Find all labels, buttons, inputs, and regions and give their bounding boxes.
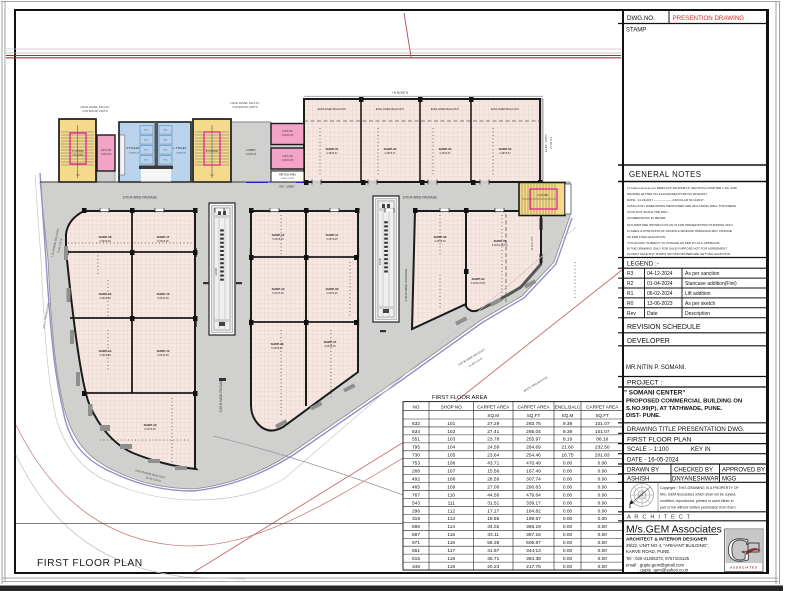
svg-text:0.00: 0.00 xyxy=(598,476,608,482)
svg-text:27.41: 27.41 xyxy=(487,429,499,435)
svg-text:DIST- PUNE.: DIST- PUNE. xyxy=(626,413,661,419)
svg-text:4.05X6.25: 4.05X6.25 xyxy=(326,292,338,295)
svg-text:24.59: 24.59 xyxy=(487,445,499,451)
svg-text:344.13: 344.13 xyxy=(526,548,541,554)
svg-text:IN-STAIR: IN-STAIR xyxy=(206,149,219,153)
svg-text:+1.5M LVL: +1.5M LVL xyxy=(549,136,553,149)
svg-text:Staircase addition(Fire): Staircase addition(Fire) xyxy=(685,281,737,287)
svg-text:SCALE :- 1:100: SCALE :- 1:100 xyxy=(627,447,669,453)
svg-text:606.87: 606.87 xyxy=(526,540,541,546)
svg-text:CARPET AREA: CARPET AREA xyxy=(586,405,619,410)
svg-text:ENCLOSED BALCONY: ENCLOSED BALCONY xyxy=(491,107,520,111)
svg-text:23.78: 23.78 xyxy=(487,437,499,443)
svg-text:307.74: 307.74 xyxy=(526,476,541,482)
svg-text:108: 108 xyxy=(447,476,455,482)
svg-text:6.60X4.05(P)+: 6.60X4.05(P)+ xyxy=(492,244,509,247)
svg-text:OUTDOOR UNITS: OUTDOOR UNITS xyxy=(232,105,257,109)
svg-text:DRAWN BY: DRAWN BY xyxy=(627,468,659,474)
svg-text:767: 767 xyxy=(412,492,420,498)
svg-text:SHOP-10: SHOP-10 xyxy=(272,287,285,291)
svg-text:FIRST FLOOR PLAN: FIRST FLOOR PLAN xyxy=(37,558,143,569)
svg-text:5.05X8.25: 5.05X8.25 xyxy=(271,347,283,350)
svg-text:543: 543 xyxy=(412,500,420,506)
svg-text:109: 109 xyxy=(447,484,455,490)
svg-text:SHOP-02: SHOP-02 xyxy=(384,147,397,151)
svg-text:102: 102 xyxy=(447,429,455,435)
svg-text:ENT. LOBBY: ENT. LOBBY xyxy=(280,185,295,189)
svg-text:STAMP: STAMP xyxy=(626,28,646,34)
svg-text:587: 587 xyxy=(412,532,420,538)
svg-text:1) Carpet area as per RERA ACT: 1) Carpet area as per RERA ACT 2016/A/BT… xyxy=(627,186,738,190)
svg-text:4.48X5.67: 4.48X5.67 xyxy=(384,152,396,155)
svg-text:DRAWING TITLE PRESENTATION DWG: DRAWING TITLE PRESENTATION DWG. xyxy=(627,426,745,433)
svg-text:27.00: 27.00 xyxy=(487,484,499,490)
svg-text:290.63: 290.63 xyxy=(526,484,541,490)
svg-text:W.C: W.C xyxy=(163,160,168,162)
svg-text:366.19: 366.19 xyxy=(526,524,541,530)
svg-text:264.69: 264.69 xyxy=(526,445,541,451)
svg-text:LOBBY: LOBBY xyxy=(246,148,256,152)
svg-text:8.19: 8.19 xyxy=(563,437,573,443)
svg-text:0.00: 0.00 xyxy=(563,469,573,475)
svg-text:4.45X8.25: 4.45X8.25 xyxy=(434,240,446,243)
svg-text:479.64: 479.64 xyxy=(526,492,541,498)
svg-text:0.00: 0.00 xyxy=(563,461,573,467)
svg-text:56.38: 56.38 xyxy=(487,540,499,546)
svg-text:104: 104 xyxy=(447,445,455,451)
svg-text:3.05 M WIDE PASSAGE: 3.05 M WIDE PASSAGE xyxy=(403,196,438,200)
svg-text:SHOP-04: SHOP-04 xyxy=(472,277,485,281)
svg-text:0.00: 0.00 xyxy=(563,524,573,530)
svg-text:S.NO.99(P), AT TATHWADE, PUNE: S.NO.99(P), AT TATHWADE, PUNE. xyxy=(626,406,723,412)
svg-text:0.00: 0.00 xyxy=(598,532,608,538)
svg-text:103: 103 xyxy=(447,437,455,443)
svg-text:Lift addition: Lift addition xyxy=(685,291,711,297)
svg-text:13-06-2023: 13-06-2023 xyxy=(647,301,673,307)
svg-text:APPROVED BY: APPROVED BY xyxy=(722,468,765,474)
svg-text:34.11: 34.11 xyxy=(487,532,499,538)
svg-text:119: 119 xyxy=(447,564,455,570)
svg-text:modified, reproduced, printed: modified, reproduced, printed or used ei… xyxy=(660,499,734,503)
svg-text:5.05X6.25: 5.05X6.25 xyxy=(157,354,169,357)
svg-text:348: 348 xyxy=(412,564,420,570)
svg-text:2.000X1.95: 2.000X1.95 xyxy=(282,135,294,137)
svg-text:4.48X5.67: 4.48X5.67 xyxy=(439,152,451,155)
svg-text:+H NORTH: +H NORTH xyxy=(392,91,409,95)
svg-text:201.83: 201.83 xyxy=(595,453,610,459)
svg-text:F.TOILET: F.TOILET xyxy=(126,146,139,150)
svg-text:9.39: 9.39 xyxy=(563,421,573,427)
svg-text:Date: Date xyxy=(647,311,658,317)
svg-text:116: 116 xyxy=(447,540,455,546)
svg-text:SHOP-16: SHOP-16 xyxy=(99,292,112,296)
svg-text:0.00: 0.00 xyxy=(598,556,608,562)
svg-text:LIFT-02: LIFT-02 xyxy=(282,129,293,133)
svg-text:0.00: 0.00 xyxy=(598,461,608,467)
svg-text:UP: UP xyxy=(210,173,214,177)
svg-text:31.51: 31.51 xyxy=(487,500,499,506)
svg-text:SHOP-05: SHOP-05 xyxy=(494,239,507,243)
svg-text:M/s. GEM Associates which shal: M/s. GEM Associates which shall not be c… xyxy=(660,493,736,497)
svg-text:0.00: 0.00 xyxy=(598,548,608,554)
svg-text:27.29: 27.29 xyxy=(487,421,499,427)
svg-text:3.00 M WIDE PASSAGE: 3.00 M WIDE PASSAGE xyxy=(404,269,408,302)
svg-text:0.00: 0.00 xyxy=(563,540,573,546)
svg-text:0.00: 0.00 xyxy=(598,492,608,498)
svg-text:01-04-2024: 01-04-2024 xyxy=(647,281,673,287)
svg-text:0.00: 0.00 xyxy=(598,500,608,506)
svg-text:CHECKED BY: CHECKED BY xyxy=(674,468,713,474)
svg-text:0.00: 0.00 xyxy=(563,500,573,506)
svg-text:LIFT-03: LIFT-03 xyxy=(282,154,293,158)
svg-text:ENCLOSED BALCONY: ENCLOSED BALCONY xyxy=(318,107,347,111)
svg-text:634: 634 xyxy=(412,429,420,435)
svg-text:4.45X6.28: 4.45X6.28 xyxy=(99,297,111,300)
svg-text:W.C: W.C xyxy=(163,130,168,132)
svg-text:DATE:- 14-09-2017-------------: DATE:- 14-09-2017-------------------CIRC… xyxy=(627,198,705,202)
svg-text:R0: R0 xyxy=(627,301,634,307)
svg-text:A S S O C I A T E S: A S S O C I A T E S xyxy=(730,566,757,570)
svg-text:115: 115 xyxy=(447,532,455,538)
svg-text:101.07: 101.07 xyxy=(595,429,610,435)
svg-text:1.95X1.80: 1.95X1.80 xyxy=(101,154,112,156)
svg-text:04-12-2024: 04-12-2024 xyxy=(647,271,673,277)
svg-text:114: 114 xyxy=(447,524,455,530)
svg-text:551: 551 xyxy=(412,437,420,443)
svg-text:293.75: 293.75 xyxy=(526,421,541,427)
svg-text:18.55: 18.55 xyxy=(487,516,499,522)
svg-text:R1: R1 xyxy=(627,291,634,297)
svg-text:RAMP: RAMP xyxy=(214,268,218,276)
svg-text:PROJECT :: PROJECT : xyxy=(627,380,662,387)
svg-text:Copyright : THIS DRAWING IS A: Copyright : THIS DRAWING IS A PROPERTY O… xyxy=(660,486,740,490)
svg-text:101.07: 101.07 xyxy=(595,421,610,427)
svg-text:110: 110 xyxy=(447,492,455,498)
svg-text:SHOP-11: SHOP-11 xyxy=(326,233,339,237)
svg-text:" SOMANI CENTER": " SOMANI CENTER" xyxy=(624,390,685,397)
svg-text:F-STAIR: F-STAIR xyxy=(538,193,549,197)
svg-text:Description: Description xyxy=(685,311,710,317)
svg-text:101: 101 xyxy=(447,421,455,427)
svg-text:9.05X6.25: 9.05X6.25 xyxy=(144,428,156,431)
svg-text:254.46: 254.46 xyxy=(526,453,541,459)
svg-text:319: 319 xyxy=(412,516,420,522)
svg-text:SHOP-12: SHOP-12 xyxy=(272,233,285,237)
svg-text:2) BALCONY DIMENSIONS MENTIONE: 2) BALCONY DIMENSIONS MENTIONED ARE INCL… xyxy=(627,204,737,208)
svg-text:0.00: 0.00 xyxy=(598,508,608,514)
svg-text:06-02-2024: 06-02-2024 xyxy=(647,291,673,297)
svg-text:FIRST FLOOR AREA: FIRST FLOOR AREA xyxy=(432,395,487,401)
svg-text:384.38: 384.38 xyxy=(526,556,541,562)
svg-text:CARPET AREA: CARPET AREA xyxy=(477,405,510,410)
svg-text:UP: UP xyxy=(76,173,80,177)
svg-text:PROPOSED COMMERCIAL BUILDING O: PROPOSED COMMERCIAL BUILDING ON xyxy=(626,399,742,405)
svg-text:28.59: 28.59 xyxy=(487,476,499,482)
svg-text:A R C H I T E C T: A R C H I T E C T xyxy=(627,515,691,521)
svg-text:632: 632 xyxy=(412,421,420,427)
svg-text:SHOP-14: SHOP-14 xyxy=(99,349,112,353)
svg-text:ENCLOSED BALCONY: ENCLOSED BALCONY xyxy=(376,107,405,111)
svg-text:0.00: 0.00 xyxy=(563,516,573,522)
svg-text:199.67: 199.67 xyxy=(526,516,541,522)
svg-text:23.64: 23.64 xyxy=(487,453,499,459)
svg-text:0.00: 0.00 xyxy=(563,492,573,498)
svg-text:SHOP-13: SHOP-13 xyxy=(157,349,170,353)
svg-text:As per sketch: As per sketch xyxy=(685,301,716,307)
svg-text:W.C: W.C xyxy=(144,160,149,162)
svg-text:DWG.NO.: DWG.NO. xyxy=(627,15,655,22)
svg-text:43.71: 43.71 xyxy=(487,461,499,467)
svg-text:AS PER FINAL ELEVATION .: AS PER FINAL ELEVATION . xyxy=(627,235,667,239)
svg-text:5.05X6.25: 5.05X6.25 xyxy=(272,292,284,295)
svg-text:SHOP-17: SHOP-17 xyxy=(157,235,170,239)
svg-text:M/s.GEM Associates: M/s.GEM Associates xyxy=(626,525,722,536)
svg-text:105: 105 xyxy=(447,453,455,459)
svg-text:0.00: 0.00 xyxy=(598,524,608,530)
svg-text:SHOP-04: SHOP-04 xyxy=(499,147,512,151)
svg-text:117: 117 xyxy=(447,548,455,554)
svg-text:MR.NITIN P. SOMANI.: MR.NITIN P. SOMANI. xyxy=(626,365,687,371)
svg-text:5.05X8.25: 5.05X8.25 xyxy=(157,240,169,243)
svg-text:492: 492 xyxy=(412,476,420,482)
svg-text:W.C: W.C xyxy=(144,140,149,142)
svg-text:3.05X1.20 MT: 3.05X1.20 MT xyxy=(281,178,295,180)
svg-text:339.17: 339.17 xyxy=(526,500,541,506)
svg-text:184.82: 184.82 xyxy=(526,508,541,514)
svg-text:0.00: 0.00 xyxy=(598,564,608,570)
svg-text:111: 111 xyxy=(448,500,456,506)
svg-text:SHOP-19: SHOP-19 xyxy=(144,423,157,427)
svg-text:107: 107 xyxy=(447,469,455,475)
svg-text:20.23: 20.23 xyxy=(487,564,499,570)
svg-text:3.00X5.45: 3.00X5.45 xyxy=(246,154,257,156)
svg-text:W.C: W.C xyxy=(163,150,168,152)
svg-text:3.00 M WIDE PASSAGE: 3.00 M WIDE PASSAGE xyxy=(219,378,223,413)
svg-text:6.62X8.25(P): 6.62X8.25(P) xyxy=(471,282,486,285)
svg-text:9) DONT SALE ANY SHOPS OR OFFI: 9) DONT SALE ANY SHOPS OR OFFICES BEFORE… xyxy=(627,252,731,256)
svg-text:DEVELOPER: DEVELOPER xyxy=(627,338,670,345)
svg-text:8) THE DRAWING ONLY FOR SALE P: 8) THE DRAWING ONLY FOR SALE PURPOSE NOT… xyxy=(627,247,728,251)
svg-text:586: 586 xyxy=(412,524,420,530)
svg-text:RAMP: RAMP xyxy=(378,258,382,266)
svg-text:PRESENTION DRAWING: PRESENTION DRAWING xyxy=(673,15,745,22)
svg-text:367.16: 367.16 xyxy=(526,532,541,538)
svg-text:ELEC. DUCT: ELEC. DUCT xyxy=(544,134,548,152)
svg-text:Rev: Rev xyxy=(627,311,636,317)
svg-text:268: 268 xyxy=(412,469,420,475)
svg-text:5.05X6.25: 5.05X6.25 xyxy=(157,297,169,300)
svg-text:As per sanction: As per sanction xyxy=(685,271,720,277)
svg-text:34.02: 34.02 xyxy=(487,524,499,530)
svg-text:SQ.M: SQ.M xyxy=(562,413,574,418)
svg-text:W.C: W.C xyxy=(144,130,149,132)
svg-text:4.45X6.28: 4.45X6.28 xyxy=(99,354,111,357)
svg-text:15.56: 15.56 xyxy=(487,469,499,475)
svg-text:FIRST FLOOR PLAN: FIRST FLOOR PLAN xyxy=(627,437,692,444)
svg-text:REVISION SCHEDULE: REVISION SCHEDULE xyxy=(627,324,701,331)
svg-text:2.50 WIDE: 2.50 WIDE xyxy=(72,154,84,157)
svg-text:106: 106 xyxy=(447,461,455,467)
svg-text:E.V.C. PT.: E.V.C. PT. xyxy=(530,236,534,250)
svg-text:0.00: 0.00 xyxy=(598,540,608,546)
svg-text:ASHISH: ASHISH xyxy=(627,477,649,483)
svg-text:ENCLOSED BALCONY: ENCLOSED BALCONY xyxy=(431,107,460,111)
svg-text:465: 465 xyxy=(412,484,420,490)
svg-text:615: 615 xyxy=(412,556,420,562)
svg-text:L.TOILET: L.TOILET xyxy=(173,146,186,150)
svg-text:255.97: 255.97 xyxy=(526,437,541,443)
svg-text:SHOP-08: SHOP-08 xyxy=(271,342,284,346)
svg-text:17.17: 17.17 xyxy=(487,508,499,514)
svg-text:W.C: W.C xyxy=(163,140,168,142)
svg-text:SHOP-01: SHOP-01 xyxy=(326,147,339,151)
svg-text:SHOP NO: SHOP NO xyxy=(441,405,463,410)
svg-text:296: 296 xyxy=(412,508,420,514)
svg-text:3) DO NOT SCALE THE DRG.: 3) DO NOT SCALE THE DRG. xyxy=(627,210,669,214)
svg-text:Tel : 020-41205373, 976710312: Tel : 020-41205373, 9767103125 xyxy=(626,556,690,561)
svg-text:167.49: 167.49 xyxy=(526,469,541,475)
svg-text:KEY IN: KEY IN xyxy=(691,447,711,453)
svg-text:0.00: 0.00 xyxy=(563,476,573,482)
svg-text:KARVE ROAD, PUNE.: KARVE ROAD, PUNE. xyxy=(626,549,671,554)
svg-text:LIFT-01: LIFT-01 xyxy=(101,148,112,152)
svg-text:part or full without written p: part or full without written permission … xyxy=(660,506,737,510)
svg-text:0.00: 0.00 xyxy=(563,508,573,514)
svg-text:ARCHITECT & INTERIOR DESIGNER: ARCHITECT & INTERIOR DESIGNER xyxy=(626,537,708,542)
svg-text:551: 551 xyxy=(412,548,420,554)
svg-text:795: 795 xyxy=(412,445,420,451)
svg-text:: gupte_gem@yahoo.co.in: : gupte_gem@yahoo.co.in xyxy=(638,568,689,573)
svg-text:R3: R3 xyxy=(627,271,634,277)
svg-text:232.50: 232.50 xyxy=(595,445,610,451)
svg-text:39/22, UNIT NO 4, "ARIHANT BUI: 39/22, UNIT NO 4, "ARIHANT BUILDING", xyxy=(626,543,709,548)
svg-text:W.C: W.C xyxy=(144,150,149,152)
svg-text:R2: R2 xyxy=(627,281,634,287)
svg-text:SHOP-15: SHOP-15 xyxy=(157,292,170,296)
svg-text:3.05 M WIDE PASSAGE: 3.05 M WIDE PASSAGE xyxy=(123,196,158,200)
svg-text:0.00: 0.00 xyxy=(598,469,608,475)
svg-text:35.71: 35.71 xyxy=(487,556,499,562)
svg-text:9.39: 9.39 xyxy=(563,429,573,435)
svg-text:MAHARA LETTER NO.444/AAR/SEC/T: MAHARA LETTER NO.444/AAR/SEC/TPLB NO.201… xyxy=(627,192,708,196)
svg-text:4.05X8.25: 4.05X8.25 xyxy=(326,238,338,241)
svg-text:21.60: 21.60 xyxy=(561,445,573,451)
svg-text:6) SIZES & POSITIONS OF DOORS: 6) SIZES & POSITIONS OF DOORS & WINDOW O… xyxy=(627,229,732,233)
svg-text:0.00: 0.00 xyxy=(563,532,573,538)
svg-text:SHOP-03: SHOP-03 xyxy=(439,147,452,151)
svg-text:SQ.FT: SQ.FT xyxy=(595,413,609,418)
svg-text:44.56: 44.56 xyxy=(487,492,499,498)
svg-text:SQ.FT: SQ.FT xyxy=(527,413,541,418)
svg-text:113: 113 xyxy=(447,516,455,522)
svg-text:OUTDOOR UNITS: OUTDOOR UNITS xyxy=(82,109,107,113)
svg-text:0.00: 0.00 xyxy=(563,564,573,570)
svg-text:3.00X5.45: 3.00X5.45 xyxy=(176,152,187,154)
svg-text:SHOP-18: SHOP-18 xyxy=(99,235,112,239)
svg-text:4.48X5.67: 4.48X5.67 xyxy=(499,152,511,155)
svg-text:DNYANESHWAR: DNYANESHWAR xyxy=(672,477,719,483)
svg-text:0.00: 0.00 xyxy=(563,556,573,562)
svg-text:295.04: 295.04 xyxy=(526,429,541,435)
svg-text:ENCL.BALC: ENCL.BALC xyxy=(555,405,581,410)
svg-text:GENERAL NOTES: GENERAL NOTES xyxy=(629,170,702,179)
svg-text:2.000X1.95: 2.000X1.95 xyxy=(282,160,294,162)
svg-text:0.00: 0.00 xyxy=(563,484,573,490)
svg-text:112: 112 xyxy=(447,508,455,514)
svg-text:7) PLAN MAY SUBJECT TO CHANGE: 7) PLAN MAY SUBJECT TO CHANGE AS PER P.C… xyxy=(627,241,721,245)
svg-text:REFUGE AREA: REFUGE AREA xyxy=(279,174,296,177)
svg-text:4.45X8.28: 4.45X8.28 xyxy=(99,240,111,243)
svg-text:971: 971 xyxy=(412,540,420,546)
svg-text:4.05X8.25: 4.05X8.25 xyxy=(324,345,336,348)
svg-text:5.05X8.25: 5.05X8.25 xyxy=(272,238,284,241)
svg-text:88.16: 88.16 xyxy=(596,437,608,443)
svg-text:SHOP-07: SHOP-07 xyxy=(324,340,337,344)
svg-text:NO: NO xyxy=(413,405,420,410)
svg-text:217.76: 217.76 xyxy=(526,564,541,570)
svg-text:31.97: 31.97 xyxy=(487,548,499,554)
svg-text:DATE - 16-05-2024: DATE - 16-05-2024 xyxy=(627,458,679,464)
svg-text:0.00: 0.00 xyxy=(598,516,608,522)
svg-text:5) FURNITURE SHOWN IN PLAN IS: 5) FURNITURE SHOWN IN PLAN IS FOR PRESEN… xyxy=(627,223,734,227)
svg-text:730: 730 xyxy=(412,453,420,459)
svg-text:4) DIMENSIONS IN METER.: 4) DIMENSIONS IN METER. xyxy=(627,216,666,220)
svg-text:0.00: 0.00 xyxy=(563,548,573,554)
svg-text:3.00X5.45: 3.00X5.45 xyxy=(129,152,140,154)
svg-text:SQ.M: SQ.M xyxy=(487,413,499,418)
svg-text:MGG: MGG xyxy=(722,477,737,483)
svg-text:470.49: 470.49 xyxy=(526,461,541,467)
svg-text:118: 118 xyxy=(447,556,455,562)
svg-text:SHOP-09: SHOP-09 xyxy=(326,287,339,291)
svg-text:SHOP-06: SHOP-06 xyxy=(434,235,447,239)
svg-text:4.48X5.67: 4.48X5.67 xyxy=(326,152,338,155)
svg-text:0.00: 0.00 xyxy=(598,484,608,490)
svg-text:18.75: 18.75 xyxy=(561,453,573,459)
svg-text:753: 753 xyxy=(412,461,420,467)
svg-text:CARPET AREA: CARPET AREA xyxy=(517,405,550,410)
svg-text:LEGEND :-: LEGEND :- xyxy=(627,261,659,268)
svg-text:F-STAIR: F-STAIR xyxy=(72,149,84,153)
